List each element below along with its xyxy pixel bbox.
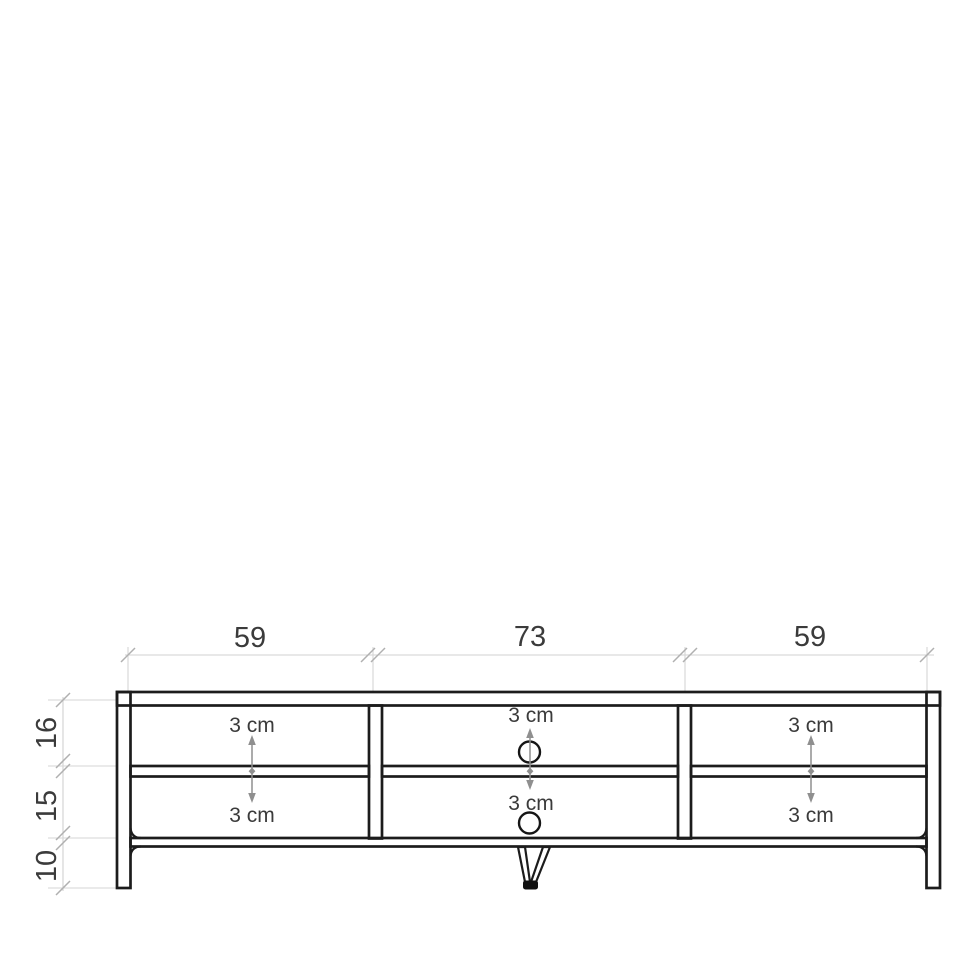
- center-leg-left-blade: [518, 847, 530, 882]
- shelf-pivot-diamond: [808, 768, 815, 775]
- bottom-shelf-fillet-right-upper: [916, 828, 927, 838]
- arrow-down-icon: [526, 780, 534, 790]
- bottom-shelf: [131, 838, 927, 847]
- clearance-label-middle-bottom: 3 cm: [508, 792, 554, 815]
- shelf-pivot-diamond: [527, 768, 534, 775]
- arrow-down-icon: [807, 793, 815, 803]
- clearance-label-right-bottom: 3 cm: [788, 804, 834, 827]
- bottom-shelf-fillet-left-upper: [131, 828, 142, 838]
- tv-lowboard-technical-drawing: 59 73 59 16 15 10: [0, 0, 970, 971]
- cable-hole-bottom: [519, 813, 540, 834]
- furniture-dimension-drawing-page: 59 73 59 16 15 10: [0, 0, 970, 971]
- divider-right: [678, 706, 691, 839]
- right-side-panel: [927, 692, 941, 888]
- dimension-chain-left: 16 15 10: [31, 693, 116, 895]
- bottom-shelf-fillet-left: [131, 847, 142, 857]
- dimension-label-height-bottom: 10: [31, 850, 63, 882]
- clearance-label-left-top: 3 cm: [229, 714, 275, 737]
- clearance-label-middle-top: 3 cm: [508, 704, 554, 727]
- arrow-down-icon: [248, 793, 256, 803]
- dimension-chain-top: 59 73 59: [121, 621, 934, 691]
- dimension-label-height-middle: 15: [31, 790, 63, 822]
- shelf-pivot-diamond: [249, 768, 256, 775]
- arrow-up-icon: [526, 728, 534, 738]
- left-side-panel: [117, 692, 131, 888]
- clearance-label-right-top: 3 cm: [788, 714, 834, 737]
- dimension-label-width-right: 59: [794, 621, 826, 653]
- bottom-shelf-fillet-right: [916, 847, 927, 857]
- clearance-label-left-bottom: 3 cm: [229, 804, 275, 827]
- center-leg-right-blade: [531, 847, 550, 882]
- dimension-label-height-top: 16: [31, 717, 63, 749]
- dimension-label-width-middle: 73: [514, 621, 546, 653]
- divider-left: [369, 706, 382, 839]
- dimension-label-width-left: 59: [234, 622, 266, 654]
- center-leg-foot: [524, 881, 538, 889]
